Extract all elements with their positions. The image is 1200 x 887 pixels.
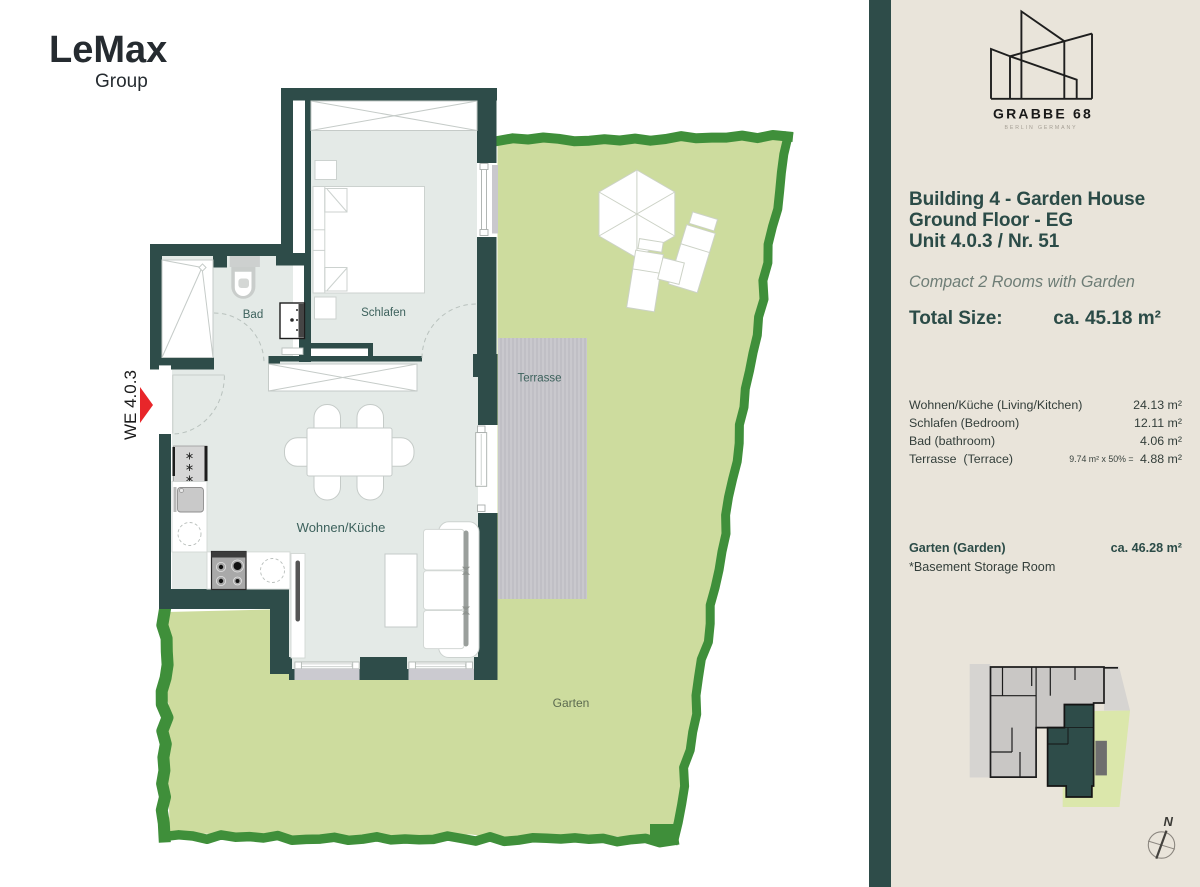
svg-text:WE 4.0.3: WE 4.0.3	[121, 370, 140, 440]
svg-text:Wohnen/Küche: Wohnen/Küche	[297, 520, 386, 535]
svg-text:N: N	[1164, 814, 1174, 829]
svg-text:Schlafen: Schlafen	[361, 307, 406, 319]
svg-text:Terrasse: Terrasse	[517, 373, 561, 385]
svg-text:Bad: Bad	[243, 309, 263, 321]
svg-text:Garten: Garten	[553, 696, 590, 710]
svg-text:BERLIN GERMANY: BERLIN GERMANY	[1004, 125, 1077, 131]
svg-text:GRABBE 68: GRABBE 68	[993, 106, 1093, 122]
